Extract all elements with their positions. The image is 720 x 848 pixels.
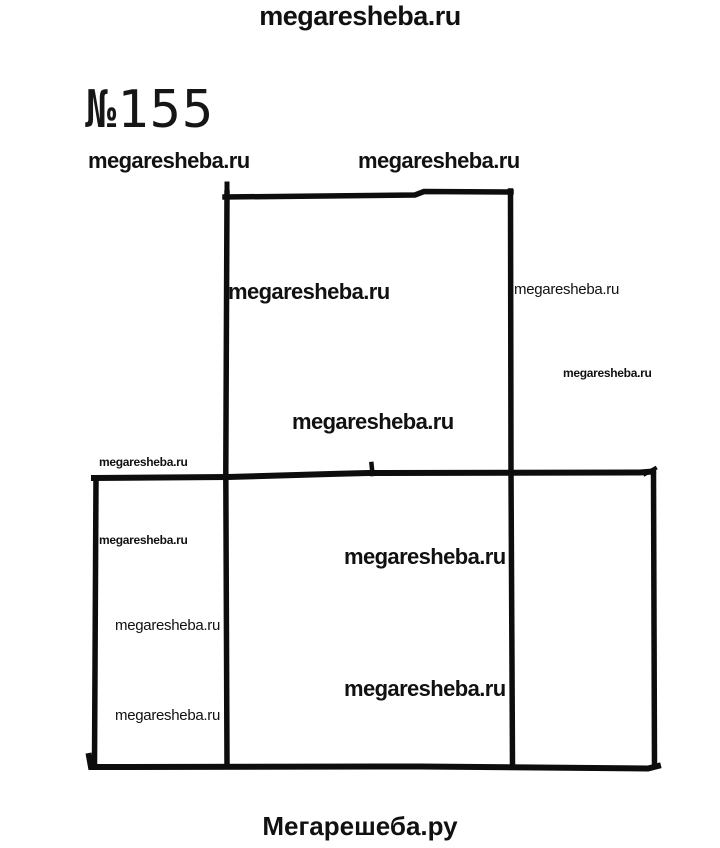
bottom-rect-right-edge	[654, 473, 655, 766]
watermark-left-cell-top: megaresheba.ru	[99, 534, 188, 546]
watermark-middle-cell-top: megaresheba.ru	[344, 546, 506, 568]
watermark-square-right-outside: megaresheba.ru	[514, 282, 619, 297]
watermark-left-cell-bottom: megaresheba.ru	[115, 708, 220, 723]
midpoint-tick	[372, 464, 373, 474]
bottom-edge	[89, 756, 658, 769]
watermark-square-center: megaresheba.ru	[292, 411, 454, 433]
right-long-vertical	[511, 191, 513, 765]
watermark-square-top-left: megaresheba.ru	[228, 281, 390, 303]
footer-site-name: Мегарешеба.ру	[0, 813, 720, 839]
watermark-middle-cell-bottom: megaresheba.ru	[344, 678, 506, 700]
watermark-above-divider: megaresheba.ru	[99, 456, 188, 468]
watermark-right-margin: megaresheba.ru	[563, 367, 652, 379]
square-top-edge	[225, 192, 511, 198]
page: megaresheba.ru №155 megaresheba.ru megar…	[0, 0, 720, 848]
bottom-rect-left-edge	[95, 478, 97, 765]
watermark-left-cell-middle: megaresheba.ru	[115, 618, 220, 633]
